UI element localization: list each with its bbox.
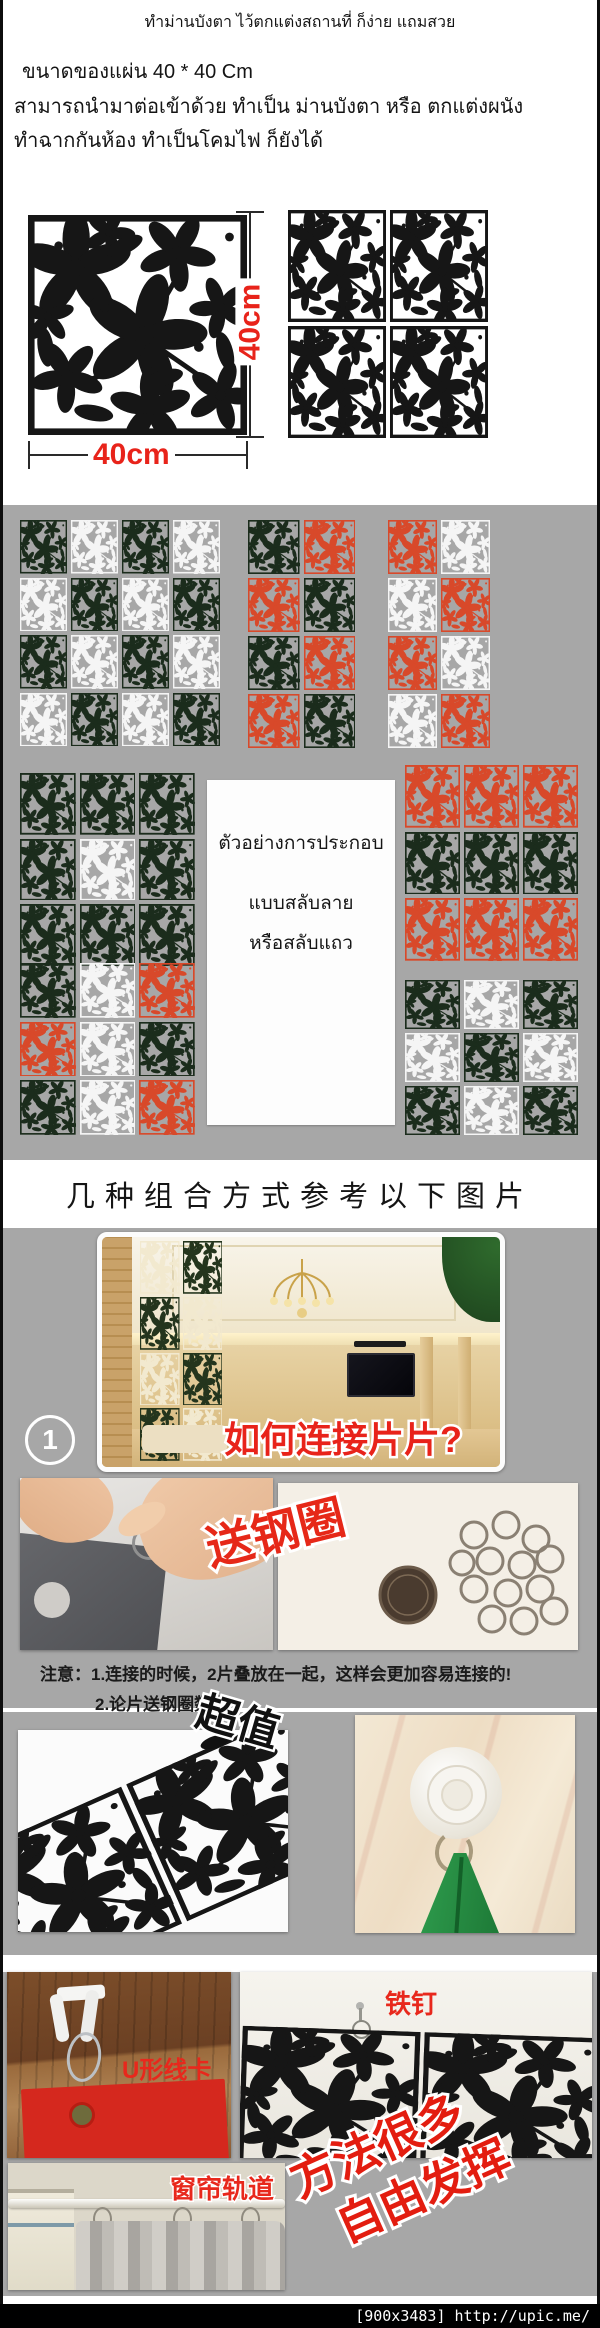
floral-panel-tile: [20, 904, 76, 966]
floral-panel-tile: [139, 904, 195, 966]
combo-section-title: 几种组合方式参考以下图片: [0, 1173, 600, 1215]
floral-panel-tile: [71, 635, 118, 689]
floral-panel-tile: [464, 1033, 519, 1082]
floral-panel-tile: [390, 210, 488, 322]
red-panel-hole: [69, 2102, 95, 2128]
floral-panel-tile: [173, 520, 220, 574]
step-number-badge: 1: [25, 1415, 75, 1465]
lace-panel-pair: [18, 1730, 288, 1932]
assembly-note-line3: หรือสลับแถว: [207, 928, 395, 958]
wall-hook-photo: [355, 1715, 575, 1933]
photo-sofa: [142, 1425, 227, 1453]
floral-panel-tile: [388, 636, 437, 690]
floral-panel-tile: [441, 578, 490, 632]
floral-panel-tile: [183, 1353, 223, 1406]
photo-mosaic-column: [102, 1237, 132, 1467]
floral-panel-tile: [80, 1080, 136, 1135]
floral-panel-tile: [173, 635, 220, 689]
photo-pillar-right: [458, 1337, 471, 1429]
floral-panel-tile: [20, 839, 76, 901]
assembly-note-card: ตัวอย่างการประกอบ แบบสลับลาย หรือสลับแถว: [207, 780, 395, 1125]
floral-panel-tile: [288, 326, 386, 438]
floral-panel-tile: [80, 1022, 136, 1077]
floral-panel-tile: [405, 898, 460, 961]
floral-panel-tile: [140, 1353, 180, 1406]
assembly-note-line2: แบบสลับลาย: [207, 888, 395, 918]
floral-panel-tile: [464, 1086, 519, 1135]
floral-panel-tile: [122, 520, 169, 574]
combo-grid-green-block: [20, 773, 195, 966]
floral-panel-tile: [139, 1080, 195, 1135]
floral-panel-tile: [139, 1022, 195, 1077]
floral-panel-tile: [173, 693, 220, 747]
floral-panel-tile: [248, 520, 300, 574]
floral-panel-tile: [464, 980, 519, 1029]
floral-panel-tile: [523, 832, 578, 895]
combo-grid-checker-3x3: [405, 980, 578, 1135]
vertical-dim-line-top: [249, 212, 251, 282]
floral-panel-tile: [388, 694, 437, 748]
floral-panel-tile: [183, 1241, 223, 1294]
photo-tv: [347, 1353, 415, 1397]
floral-panel-tile: [304, 578, 356, 632]
intro-desc-line2: ทำฉากกันห้อง ทำเป็นโคมไฟ ก็ยังได้: [14, 124, 323, 156]
floral-panel-tile: [20, 1080, 76, 1135]
floral-panel-tile: [464, 832, 519, 895]
height-dimension-label: 40cm: [235, 279, 265, 366]
floral-panel-tile: [80, 963, 136, 1018]
floral-panel-tile: [20, 1022, 76, 1077]
floral-panel-tile: [405, 1086, 460, 1135]
intro-size-line: ขนาดของแผ่น 40 * 40 Cm: [22, 55, 253, 87]
floral-panel-tile: [122, 578, 169, 632]
floral-panel-tile: [523, 765, 578, 828]
floral-panel-tile: [173, 578, 220, 632]
floral-panel-tile: [248, 636, 300, 690]
floral-panel-tile: [248, 578, 300, 632]
floral-panel-tile: [183, 1297, 223, 1350]
vertical-dim-tick-bottom: [236, 436, 264, 438]
footer-white-strip: [0, 2296, 600, 2304]
floral-panel-tile: [140, 1241, 180, 1294]
floral-panel-tile: [405, 980, 460, 1029]
floral-panel-tile: [304, 520, 356, 574]
floral-panel-tile: [122, 693, 169, 747]
combo-grid-red-white: [388, 520, 490, 748]
floral-panel-tile: [523, 1033, 578, 1082]
connect-question-caption: 如何连接片片? 如何连接片片?: [224, 1421, 462, 1459]
floral-panel-tile: [71, 520, 118, 574]
floral-panel-tile: [20, 635, 67, 689]
combo-grid-green-red: [248, 520, 355, 748]
photo-panel-hole: [34, 1582, 70, 1618]
width-dimension-label: 40cm: [88, 440, 175, 470]
photo-pillar-left: [420, 1337, 433, 1429]
floral-panel-tile: [20, 693, 67, 747]
panel-set-2x2-image: [288, 210, 488, 438]
floral-panel-tile: [304, 694, 356, 748]
note-line1: 注意：1.连接的时候，2片叠放在一起，这样会更加容易连接的!: [40, 1660, 511, 1685]
combo-grid-striped-rows: [405, 765, 578, 961]
vertical-dim-tick-top: [236, 211, 264, 213]
photo-soundbar: [354, 1341, 406, 1347]
chandelier: [262, 1259, 342, 1325]
floral-panel-tile: [441, 636, 490, 690]
iron-nail-label: 铁钉: [385, 1984, 437, 2021]
left-border: [0, 0, 3, 2328]
floral-panel-tile: [20, 963, 76, 1018]
floral-panel-tile: [139, 773, 195, 835]
gray-curtain: [76, 2221, 285, 2290]
horizontal-dim-tick-right: [246, 441, 248, 469]
intro-desc-line1: สามารถนำมาต่อเข้าด้วย ทำเป็น ม่านบังตา ห…: [14, 90, 523, 122]
floral-panel-tile: [288, 210, 386, 322]
product-listing-page: ทำม่านบังตา ไว้ตกแต่งสถานที่ ก็ง่าย แถมส…: [0, 0, 600, 2328]
curtain-track-label: 窗帘轨道 窗帘轨道: [170, 2176, 274, 2203]
combo-grid-mixed: [20, 963, 195, 1135]
floral-panel-tile: [464, 765, 519, 828]
floral-panel-tile: [523, 980, 578, 1029]
lace-panels-rotated: [18, 1730, 288, 1932]
floral-panel-tile: [441, 520, 490, 574]
floral-panel-tile: [405, 765, 460, 828]
floral-panel-tile: [20, 520, 67, 574]
floral-panel-tile: [304, 636, 356, 690]
red-panel-corner: [21, 2079, 229, 2158]
floral-panel-tile: [140, 1297, 180, 1350]
floral-panel-tile: [71, 693, 118, 747]
floral-panel-tile: [71, 578, 118, 632]
floral-panel-tile: [405, 832, 460, 895]
floral-panel-tile: [80, 773, 136, 835]
floral-panel-tile: [388, 520, 437, 574]
floral-panel-tile: [523, 898, 578, 961]
combo-grid-checker-4x4: [20, 520, 220, 746]
floral-panel-tile: [122, 635, 169, 689]
floral-panel-tile: [248, 694, 300, 748]
watermark-bar: [900x3483] http://upic.me/: [0, 2304, 600, 2328]
living-room-photo: 如何连接片片? 如何连接片片?: [97, 1232, 505, 1472]
window-frame-line: [8, 2223, 74, 2227]
floral-panel-tile: [390, 326, 488, 438]
vertical-dim-line-bottom: [249, 362, 251, 438]
intro-title: ทำม่านบังตา ไว้ตกแต่งสถานที่ ก็ง่าย แถมส…: [0, 10, 600, 35]
assembly-note-line1: ตัวอย่างการประกอบ: [207, 828, 395, 858]
floral-panel-tile: [80, 904, 136, 966]
floral-panel-tile: [139, 963, 195, 1018]
floral-panel-tile: [523, 1086, 578, 1135]
floral-panel-tile: [388, 578, 437, 632]
floral-panel-tile: [405, 1033, 460, 1082]
suction-knob-inner: [441, 1779, 473, 1811]
floral-panel-tile: [20, 773, 76, 835]
floral-panel-tile: [441, 694, 490, 748]
lace-panels-photo: [18, 1730, 288, 1932]
floral-panel-tile: [80, 839, 136, 901]
u-clip-label: U形线卡: [122, 2050, 211, 2085]
horizontal-dim-tick-left: [28, 441, 30, 469]
floral-panel-tile: [464, 898, 519, 961]
height-dimension: 40cm: [214, 282, 286, 362]
floral-panel-tile: [139, 839, 195, 901]
floral-panel-tile: [20, 578, 67, 632]
